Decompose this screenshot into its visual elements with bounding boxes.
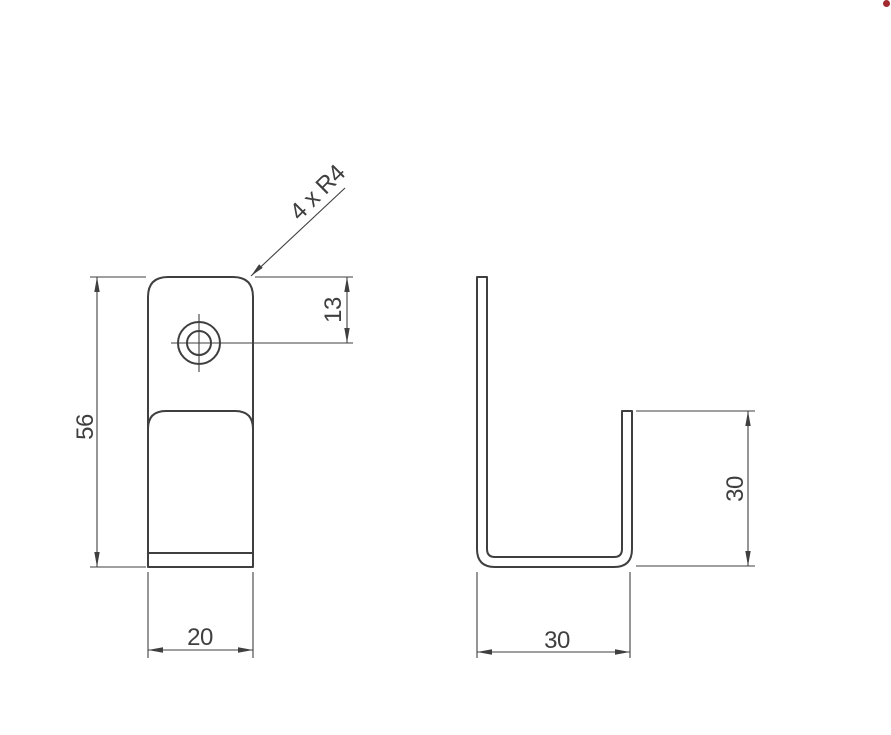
arrow-left-icon bbox=[477, 649, 492, 654]
front-view-outline bbox=[148, 277, 253, 567]
arrow-right-icon bbox=[238, 647, 253, 652]
arrow-up-icon bbox=[94, 277, 99, 292]
dimension-label-height: 56 bbox=[72, 414, 99, 440]
corner-radius-note: 4 x R4 bbox=[285, 160, 351, 226]
arrow-left-icon bbox=[148, 647, 163, 652]
dimension-front-width: 20 bbox=[148, 572, 253, 658]
leader-corner-radius: 4 x R4 bbox=[251, 160, 351, 276]
arrow-right-icon bbox=[615, 649, 630, 654]
arrow-up-icon bbox=[344, 277, 349, 292]
drawing-canvas: 56 13 20 4 x R4 bbox=[0, 0, 891, 735]
front-view bbox=[148, 277, 253, 567]
dimension-label-hole-offset: 13 bbox=[320, 297, 347, 323]
dimension-label-leg-height: 30 bbox=[722, 476, 749, 502]
side-view-outline bbox=[477, 277, 632, 567]
red-marker-dot bbox=[883, 0, 890, 7]
side-view bbox=[477, 277, 632, 567]
dimension-label-side-width: 30 bbox=[544, 627, 570, 654]
dimension-side-leg-height: 30 bbox=[636, 411, 755, 566]
front-view-rear-leg-top-line bbox=[148, 411, 253, 429]
arrow-up-icon bbox=[745, 411, 750, 426]
dimension-front-hole-offset: 13 bbox=[229, 277, 353, 343]
arrow-down-icon bbox=[344, 328, 349, 343]
arrow-down-icon bbox=[94, 552, 99, 567]
dimension-side-width: 30 bbox=[477, 572, 630, 658]
dimension-front-height: 56 bbox=[72, 277, 146, 567]
technical-drawing: 56 13 20 4 x R4 bbox=[0, 0, 891, 735]
arrow-down-icon bbox=[745, 551, 750, 566]
dimension-label-width: 20 bbox=[187, 624, 213, 651]
